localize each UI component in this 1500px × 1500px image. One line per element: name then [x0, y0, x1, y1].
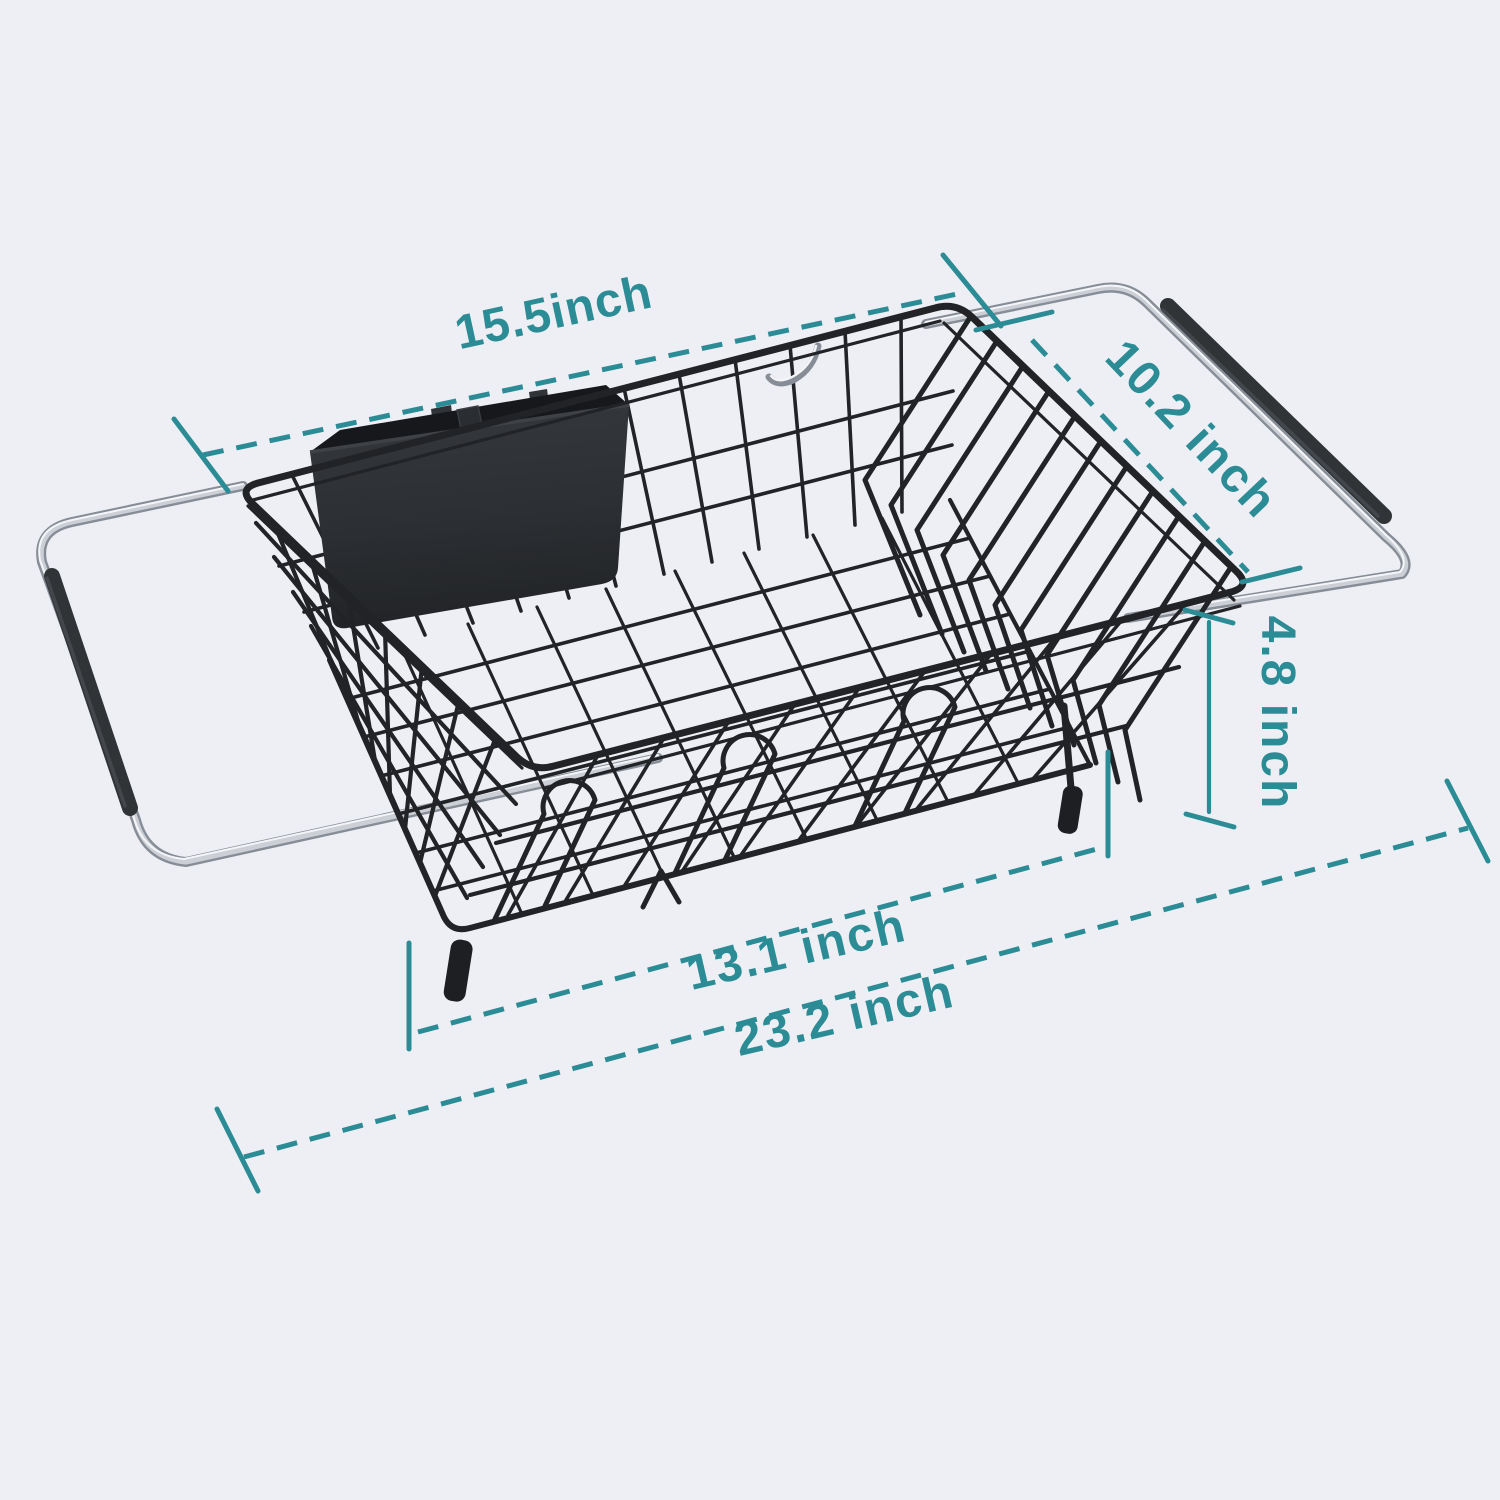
left-handle-grip-highlight [47, 578, 125, 806]
rubber-foot-right [1057, 784, 1084, 835]
right-handle-chrome-highlight [926, 286, 1404, 615]
dimension-tick [1242, 568, 1300, 582]
rubber-foot-left [442, 938, 473, 1003]
dimension-tick [174, 419, 228, 491]
dimension-tick [1186, 814, 1234, 827]
utensil-caddy [310, 385, 629, 628]
left-handle-grip [52, 576, 130, 808]
wire-basket [246, 306, 1243, 1003]
dimension-label-top-width: 15.5inch [450, 266, 657, 360]
dimension-tick [217, 1109, 258, 1191]
dimension-label-height: 4.8 inch [1251, 616, 1304, 811]
dimension-depth: 10.2 inch [976, 312, 1300, 582]
page: 15.5inch 10.2 inch 4.8 inch 13.1 inch 23… [0, 0, 1500, 1500]
dimension-height: 4.8 inch [1185, 610, 1304, 827]
dimension-basket-length: 13.1 inch [409, 752, 1108, 1049]
product-dimension-image: 15.5inch 10.2 inch 4.8 inch 13.1 inch 23… [0, 0, 1500, 1500]
right-handle [926, 286, 1406, 618]
right-leg-post [1064, 706, 1071, 788]
dimension-tick [1447, 781, 1488, 861]
dimension-label-depth: 10.2 inch [1095, 330, 1287, 529]
